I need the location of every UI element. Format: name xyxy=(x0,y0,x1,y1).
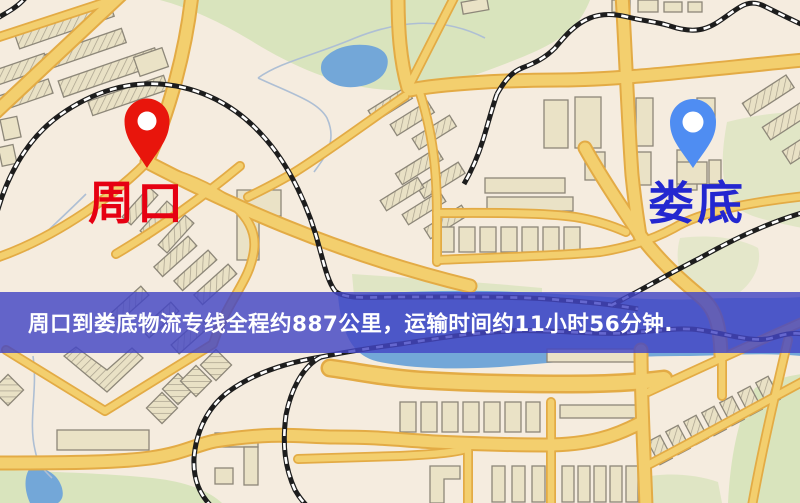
origin-label: 周口 xyxy=(88,176,186,230)
destination-label: 娄底 xyxy=(648,176,746,230)
map-screenshot: 周口 娄底 周口到娄底物流专线全程约887公里，运输时间约11小时56分钟. xyxy=(0,0,800,503)
map-canvas: 周口 娄底 xyxy=(0,0,800,503)
destination-pin-hole xyxy=(683,112,704,133)
route-info-text: 周口到娄底物流专线全程约887公里，运输时间约11小时56分钟. xyxy=(28,307,673,338)
route-info-banner: 周口到娄底物流专线全程约887公里，运输时间约11小时56分钟. xyxy=(0,292,800,353)
origin-pin-hole xyxy=(138,112,157,131)
